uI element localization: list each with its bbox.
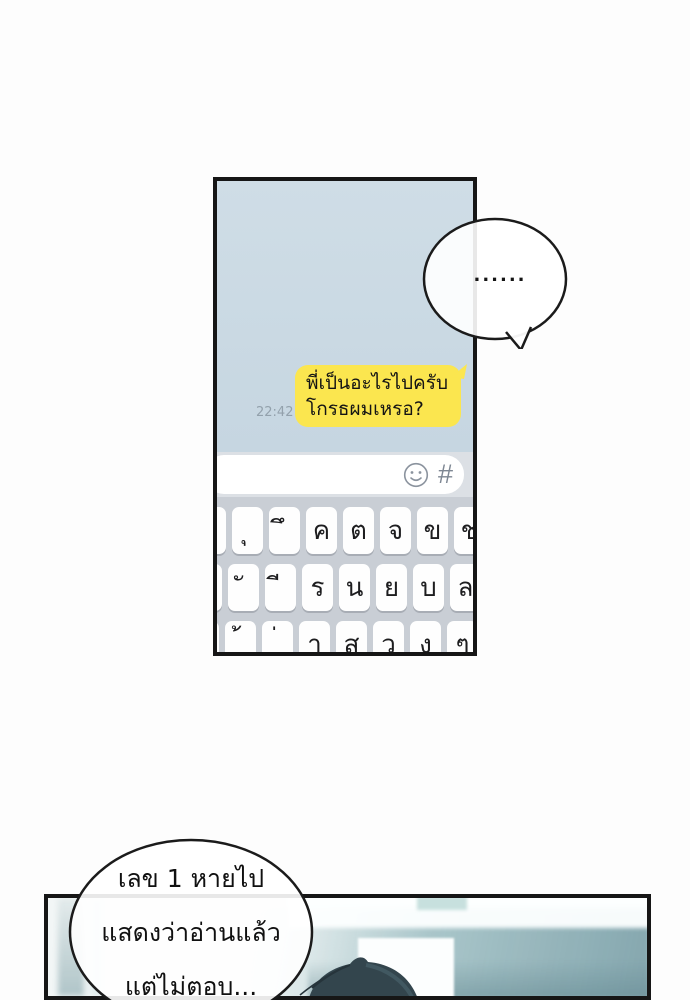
message-time: 22:42 [256, 405, 293, 420]
keyboard-key[interactable]: ต [343, 507, 374, 554]
blurred-white-wall [288, 896, 651, 928]
narration-line: เลข 1 หายไป [66, 852, 316, 906]
keyboard-key[interactable]: ถ [217, 507, 226, 554]
keyboard-key[interactable]: า [299, 621, 330, 652]
thai-keyboard: ถ ุ ึ ค ต จ ข ช ะ ั ี ร น ย บ ล เ ้ [217, 497, 473, 652]
keyboard-row: เ ้ ่ า ส ว ง ๆ [217, 621, 473, 652]
smiley-icon[interactable] [402, 461, 430, 489]
chat-input-field[interactable]: # [213, 455, 464, 494]
keyboard-key[interactable]: ุ [232, 507, 263, 554]
keyboard-key[interactable]: ส [336, 621, 367, 652]
comic-page: พี่เป็นอะไรไปครับ โกรธผมเหรอ? 22:42 # [0, 0, 690, 1000]
keyboard-key[interactable]: ๆ [447, 621, 473, 652]
keyboard-key[interactable]: ้ [225, 621, 256, 652]
message-line: โกรธผมเหรอ? [306, 396, 450, 422]
keyboard-key[interactable]: ี [265, 564, 296, 611]
keyboard-key[interactable]: จ [380, 507, 411, 554]
keyboard-key[interactable]: ย [376, 564, 407, 611]
keyboard-key[interactable]: ึ [269, 507, 300, 554]
keyboard-key[interactable]: ล [450, 564, 473, 611]
ellipsis-text: ...... [468, 268, 532, 286]
keyboard-key[interactable]: ะ [217, 564, 222, 611]
keyboard-key[interactable]: ข [417, 507, 448, 554]
keyboard-key[interactable]: ค [306, 507, 337, 554]
keyboard-row: ะ ั ี ร น ย บ ล [217, 564, 473, 611]
narration-text: เลข 1 หายไป แสดงว่าอ่านแล้ว แต่ไม่ตอบ... [66, 852, 316, 1000]
outgoing-message-bubble: พี่เป็นอะไรไปครับ โกรธผมเหรอ? [295, 365, 461, 427]
keyboard-key[interactable]: ช [454, 507, 473, 554]
narration-line: แต่ไม่ตอบ... [66, 960, 316, 1000]
keyboard-key[interactable]: บ [413, 564, 444, 611]
narration-line: แสดงว่าอ่านแล้ว [66, 906, 316, 960]
keyboard-row: ถ ุ ึ ค ต จ ข ช [217, 507, 473, 554]
keyboard-key[interactable]: ร [302, 564, 333, 611]
blurred-window-pane [417, 896, 467, 910]
keyboard-key[interactable]: ง [410, 621, 441, 652]
keyboard-key[interactable]: น [339, 564, 370, 611]
keyboard-key[interactable]: เ [217, 621, 219, 652]
message-line: พี่เป็นอะไรไปครับ [306, 370, 450, 396]
keyboard-key[interactable]: ั [228, 564, 259, 611]
bubble-tail [449, 362, 469, 380]
keyboard-key[interactable]: ว [373, 621, 404, 652]
chat-input-bar: # [217, 452, 473, 497]
keyboard-key[interactable]: ่ [262, 621, 293, 652]
hash-symbol[interactable]: # [438, 459, 453, 490]
